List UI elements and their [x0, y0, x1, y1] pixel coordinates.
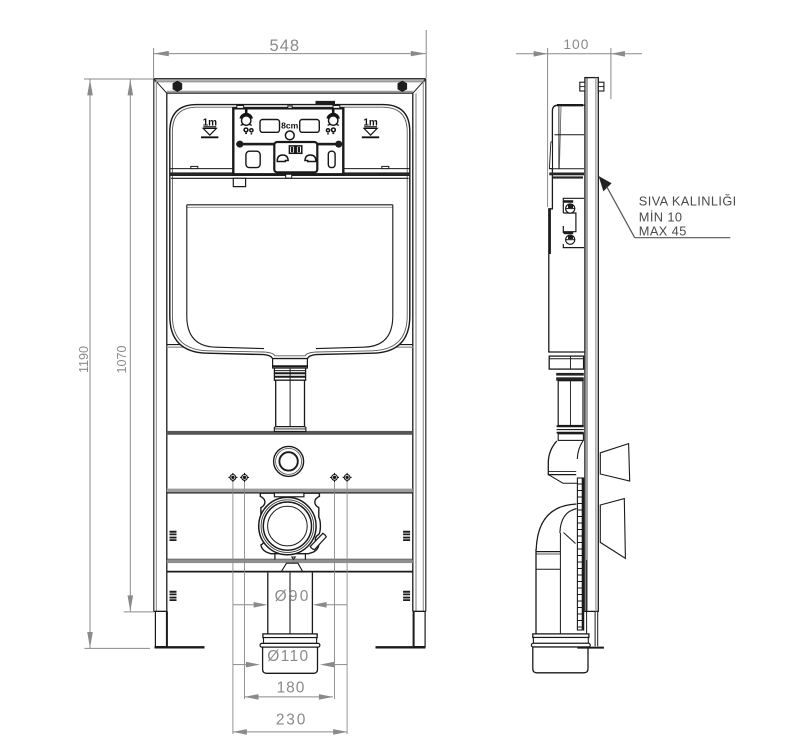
- svg-text:MİN 10: MİN 10: [639, 209, 683, 224]
- svg-text:1070: 1070: [115, 345, 129, 373]
- svg-text:Ø110: Ø110: [267, 648, 309, 665]
- svg-text:100: 100: [563, 37, 589, 52]
- svg-text:230: 230: [276, 712, 307, 729]
- svg-text:Ø90: Ø90: [275, 588, 311, 605]
- svg-text:SIVA KALINLIĞI: SIVA KALINLIĞI: [639, 194, 737, 209]
- svg-text:8cm: 8cm: [281, 121, 299, 131]
- svg-text:MAX 45: MAX 45: [639, 224, 687, 239]
- svg-text:548: 548: [270, 37, 301, 55]
- svg-text:1190: 1190: [77, 346, 91, 373]
- svg-text:180: 180: [277, 679, 306, 696]
